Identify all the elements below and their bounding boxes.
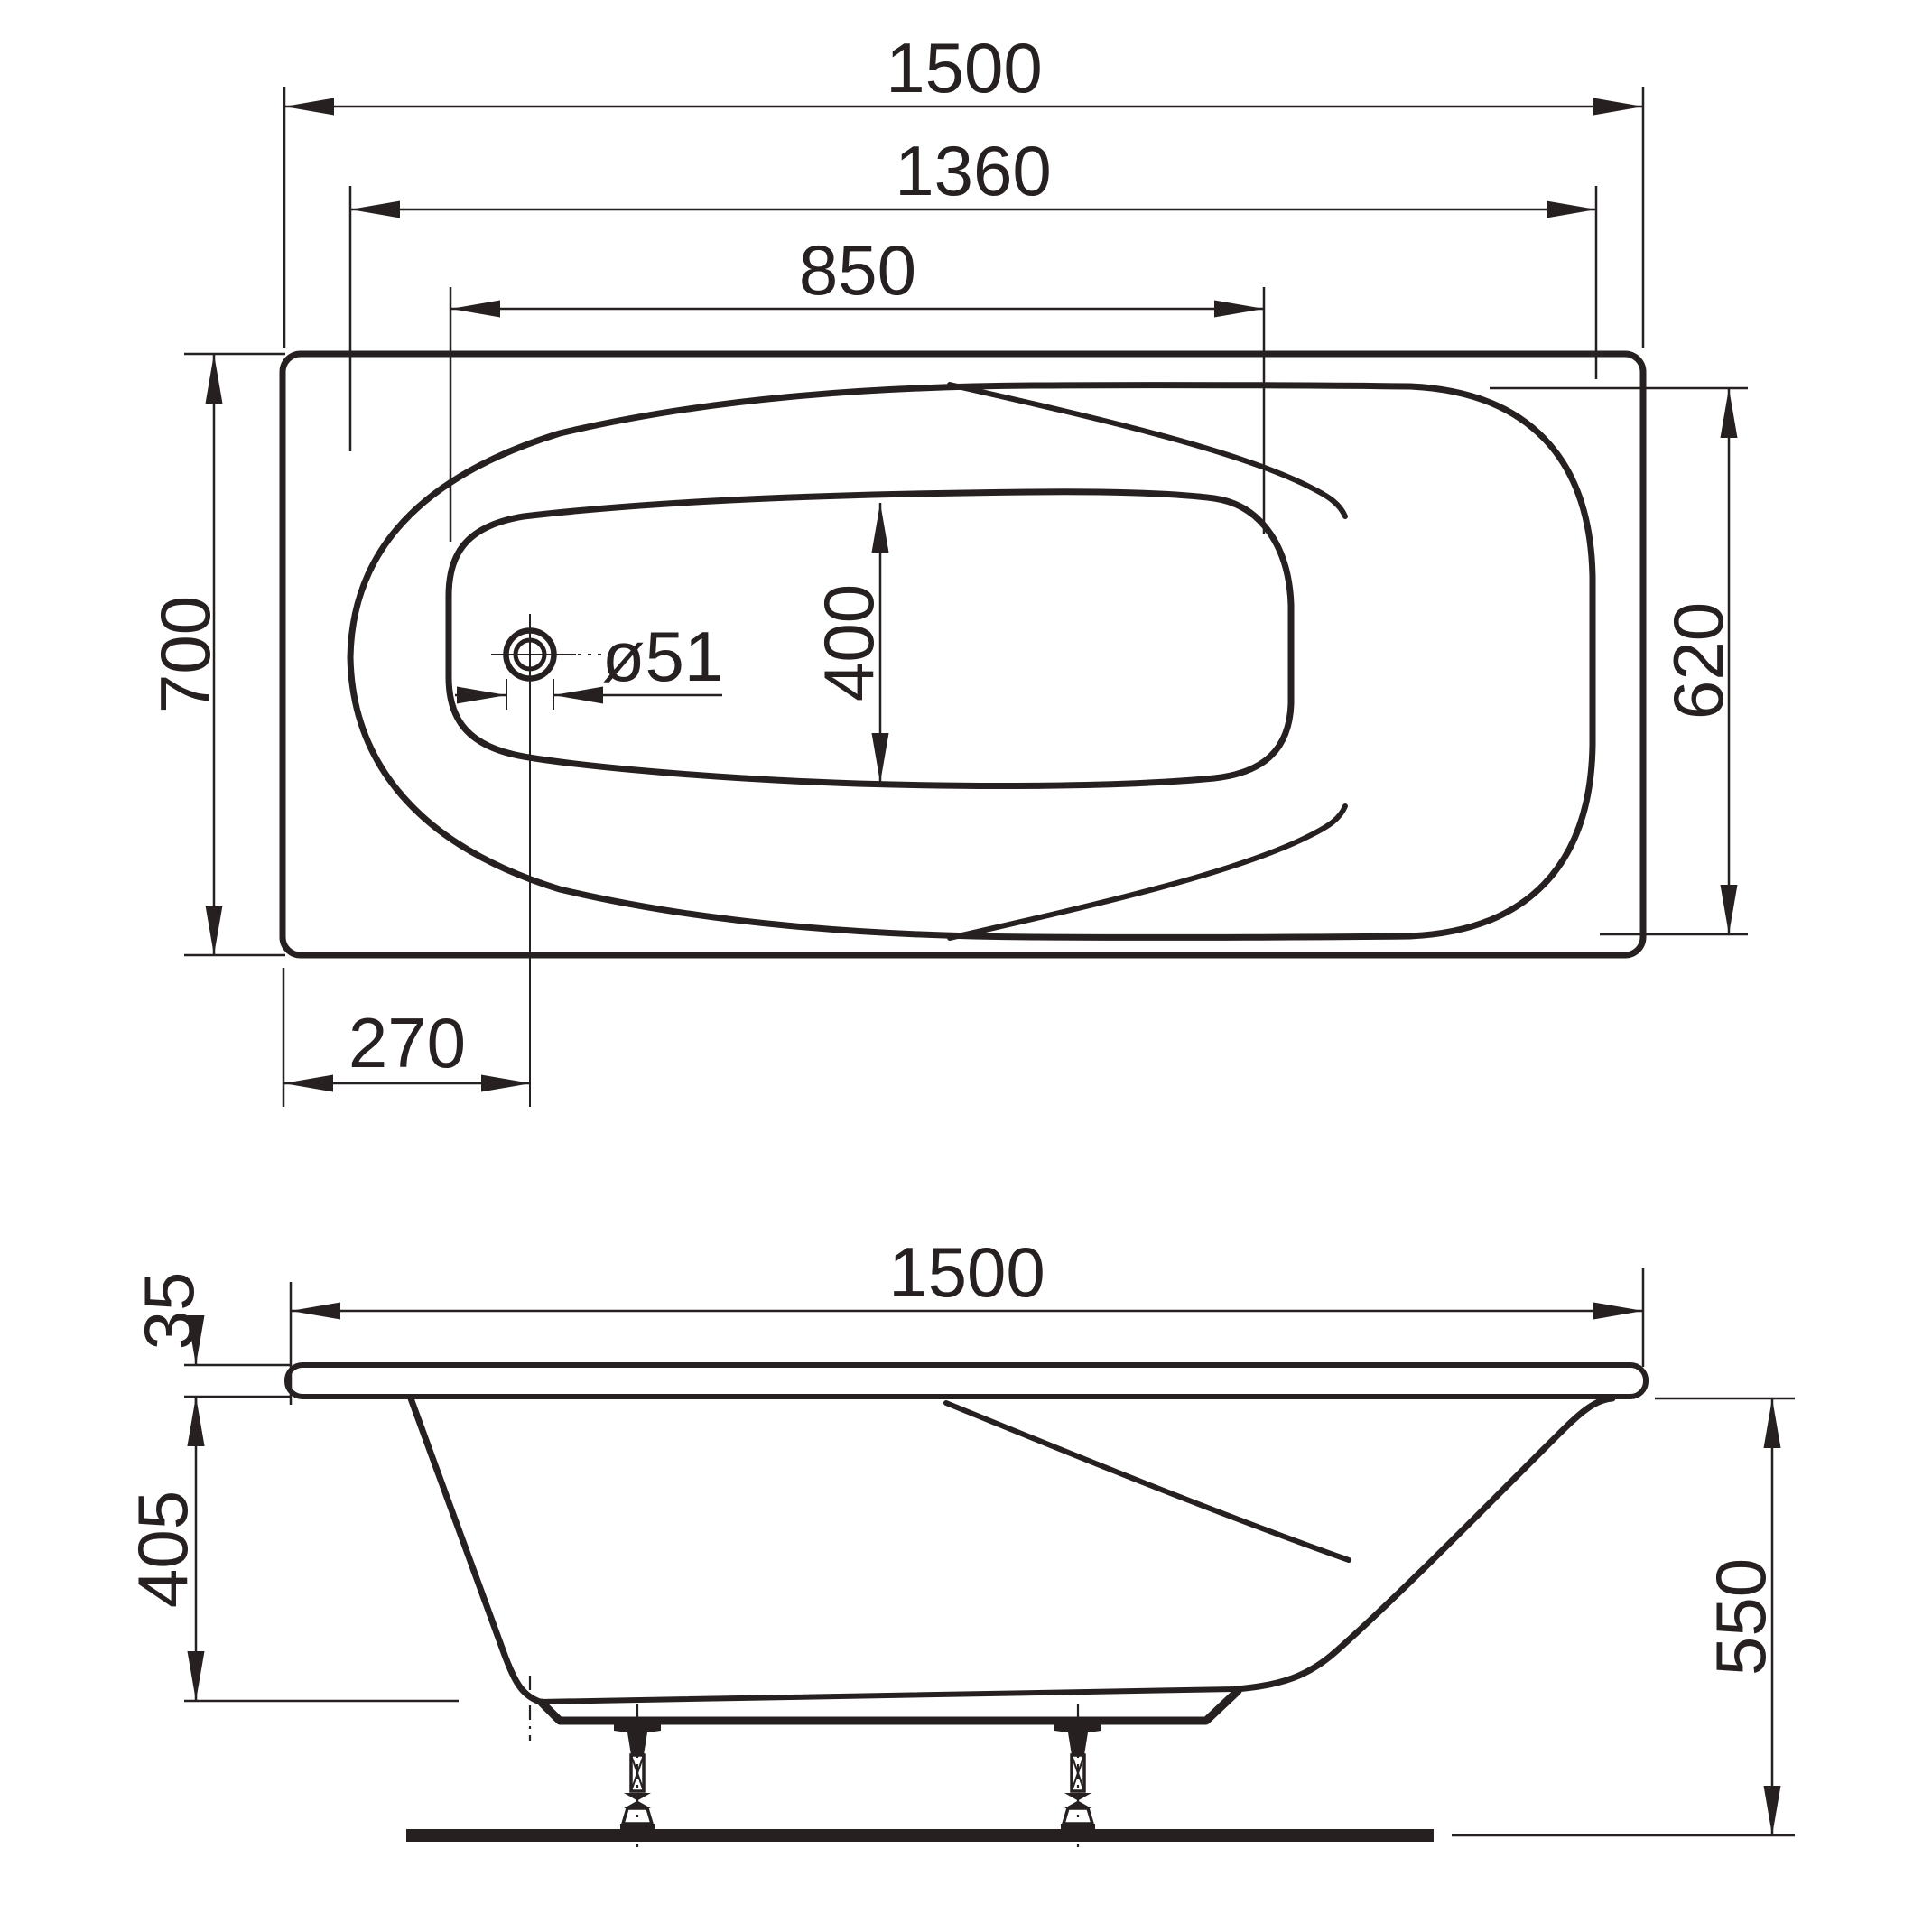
dim-top-inner-rim-width: 620 (1490, 388, 1748, 934)
backrest-slope-line-bottom (950, 806, 1345, 938)
dim-top-inner-rim-length: 1360 (350, 131, 1596, 451)
dim-label-rim-thickness: 35 (129, 1272, 209, 1351)
dim-label-overall-length: 1500 (886, 28, 1043, 107)
technical-drawing: 1500 1360 850 700 620 (0, 0, 1932, 1932)
dim-label-inner-rim-width: 620 (1658, 602, 1738, 720)
dim-total-height: 550 (1655, 1398, 1795, 1835)
adjustable-foot-left (614, 1704, 661, 1849)
floor-board (406, 1829, 1434, 1842)
dim-top-floor-width: 400 (809, 503, 888, 783)
dim-label-overall-width: 700 (145, 596, 225, 713)
rim-profile (287, 1365, 1646, 1397)
top-view: 1500 1360 850 700 620 (145, 28, 1748, 1107)
tub-opening-contour (350, 385, 1593, 938)
adjustable-foot-right (1054, 1704, 1101, 1849)
backrest-slope-line-top (950, 385, 1345, 516)
backrest-inner-slope-line (946, 1403, 1349, 1560)
dim-label-drain-diameter: ø51 (602, 617, 723, 696)
shell-bottom-line (540, 1689, 1235, 1702)
dim-label-floor-length: 850 (799, 230, 916, 310)
dim-label-drain-offset: 270 (348, 1003, 466, 1082)
shell-right-wall (1235, 1398, 1612, 1689)
drain (491, 614, 601, 1107)
drawing-canvas: 1500 1360 850 700 620 (0, 0, 1932, 1932)
dim-top-overall-width: 700 (145, 354, 285, 955)
dim-side-length: 1500 (291, 1232, 1643, 1405)
shell-left-wall (411, 1398, 540, 1702)
dim-rim-thickness: 35 (129, 1272, 291, 1445)
dim-drain-offset: 270 (283, 968, 531, 1107)
tub-outer-rim-outline (283, 354, 1643, 955)
dim-label-shell-depth: 405 (123, 1491, 202, 1608)
side-view: 1500 35 405 550 (123, 1232, 1795, 1849)
dim-label-side-length: 1500 (888, 1232, 1045, 1312)
dim-label-total-height: 550 (1701, 1558, 1780, 1676)
dim-label-inner-rim-length: 1360 (895, 131, 1052, 210)
dim-drain-diameter: ø51 (455, 617, 723, 710)
dim-shell-depth: 405 (123, 1397, 459, 1701)
dim-label-floor-width: 400 (809, 584, 888, 701)
